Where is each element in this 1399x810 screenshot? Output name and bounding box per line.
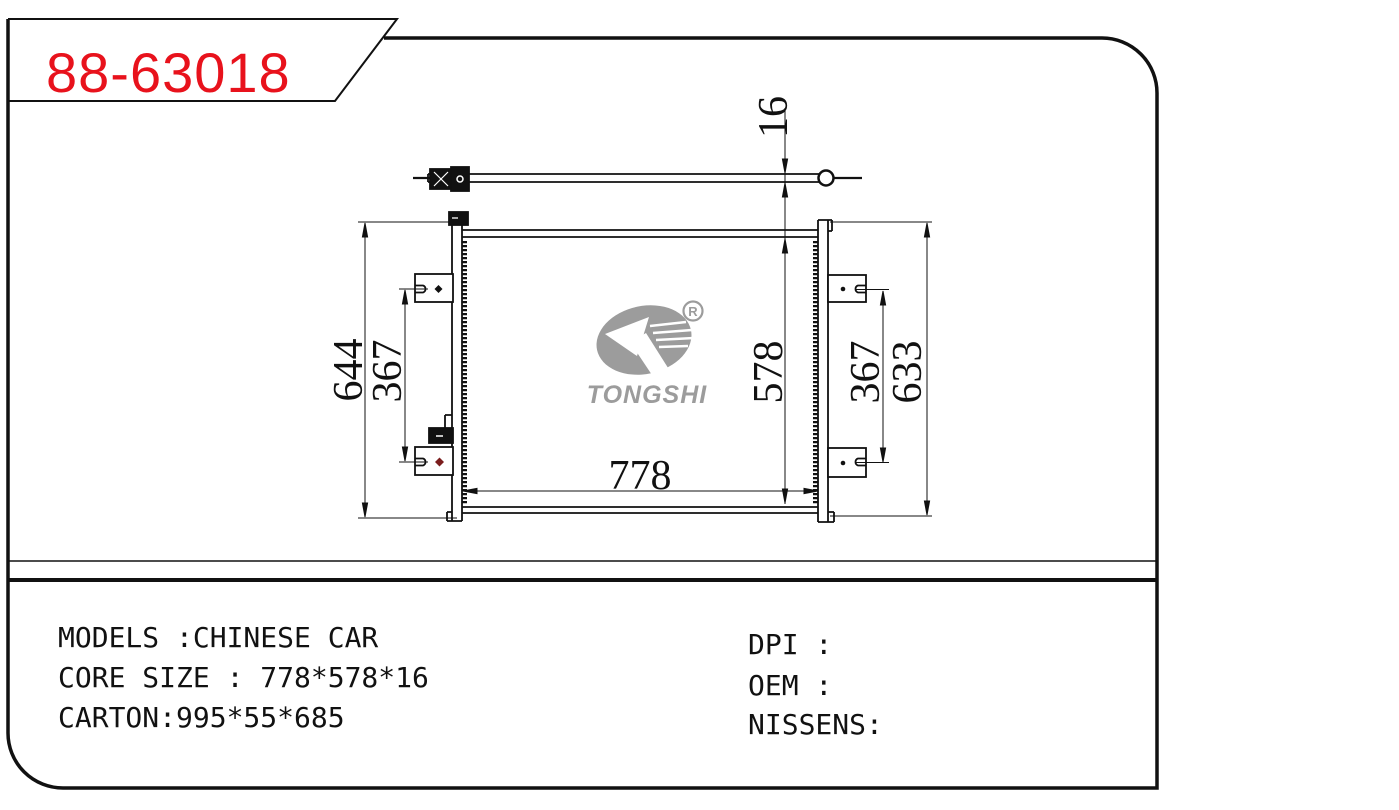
top-view-bar — [428, 174, 820, 182]
top-view-port-circle — [819, 171, 834, 186]
bracket-right-bottom-hole — [841, 461, 846, 466]
arrow-down — [362, 503, 367, 517]
dim-367-right-label: 367 — [843, 341, 889, 404]
bracket-left-bottom — [415, 447, 453, 475]
dimension-367-right: 367 — [843, 290, 889, 463]
brand-logo: R TONGSHI — [587, 297, 707, 409]
spec-nissens: NISSENS: — [748, 708, 883, 741]
spec-oem: OEM : — [748, 669, 832, 702]
spec-carton: CARTON:995*55*685 — [58, 701, 345, 734]
dim-778-label: 778 — [609, 453, 672, 499]
drawing-sheet: R TONGSHI — [0, 0, 1399, 810]
inlet-cap — [449, 212, 468, 225]
dim-16-label: 16 — [751, 96, 797, 138]
bracket-right-top-hole — [841, 287, 846, 292]
bracket-right-top — [828, 275, 866, 302]
drier-notch — [445, 415, 452, 428]
spec-dpi: DPI : — [748, 628, 832, 661]
bracket-left-top — [415, 274, 453, 302]
dimension-367-left: 367 — [365, 289, 428, 462]
dimension-778: 778 — [463, 453, 818, 499]
spec-models: MODELS :CHINESE CAR — [58, 621, 378, 654]
registered-mark: R — [688, 304, 698, 319]
condenser-top-view — [413, 167, 862, 191]
brand-name: TONGSHI — [587, 381, 707, 409]
dim-367-left-label: 367 — [365, 340, 411, 403]
dim-578-label: 578 — [746, 341, 792, 404]
dimension-578: 578 — [746, 238, 792, 504]
dimension-16: 16 — [751, 96, 797, 238]
spec-core-size: CORE SIZE : 778*578*16 — [58, 661, 429, 694]
arrow-up — [362, 223, 367, 237]
dim-633-label: 633 — [885, 341, 931, 404]
top-view-fitting-block — [451, 167, 469, 191]
part-number: 88-63018 — [46, 40, 291, 105]
